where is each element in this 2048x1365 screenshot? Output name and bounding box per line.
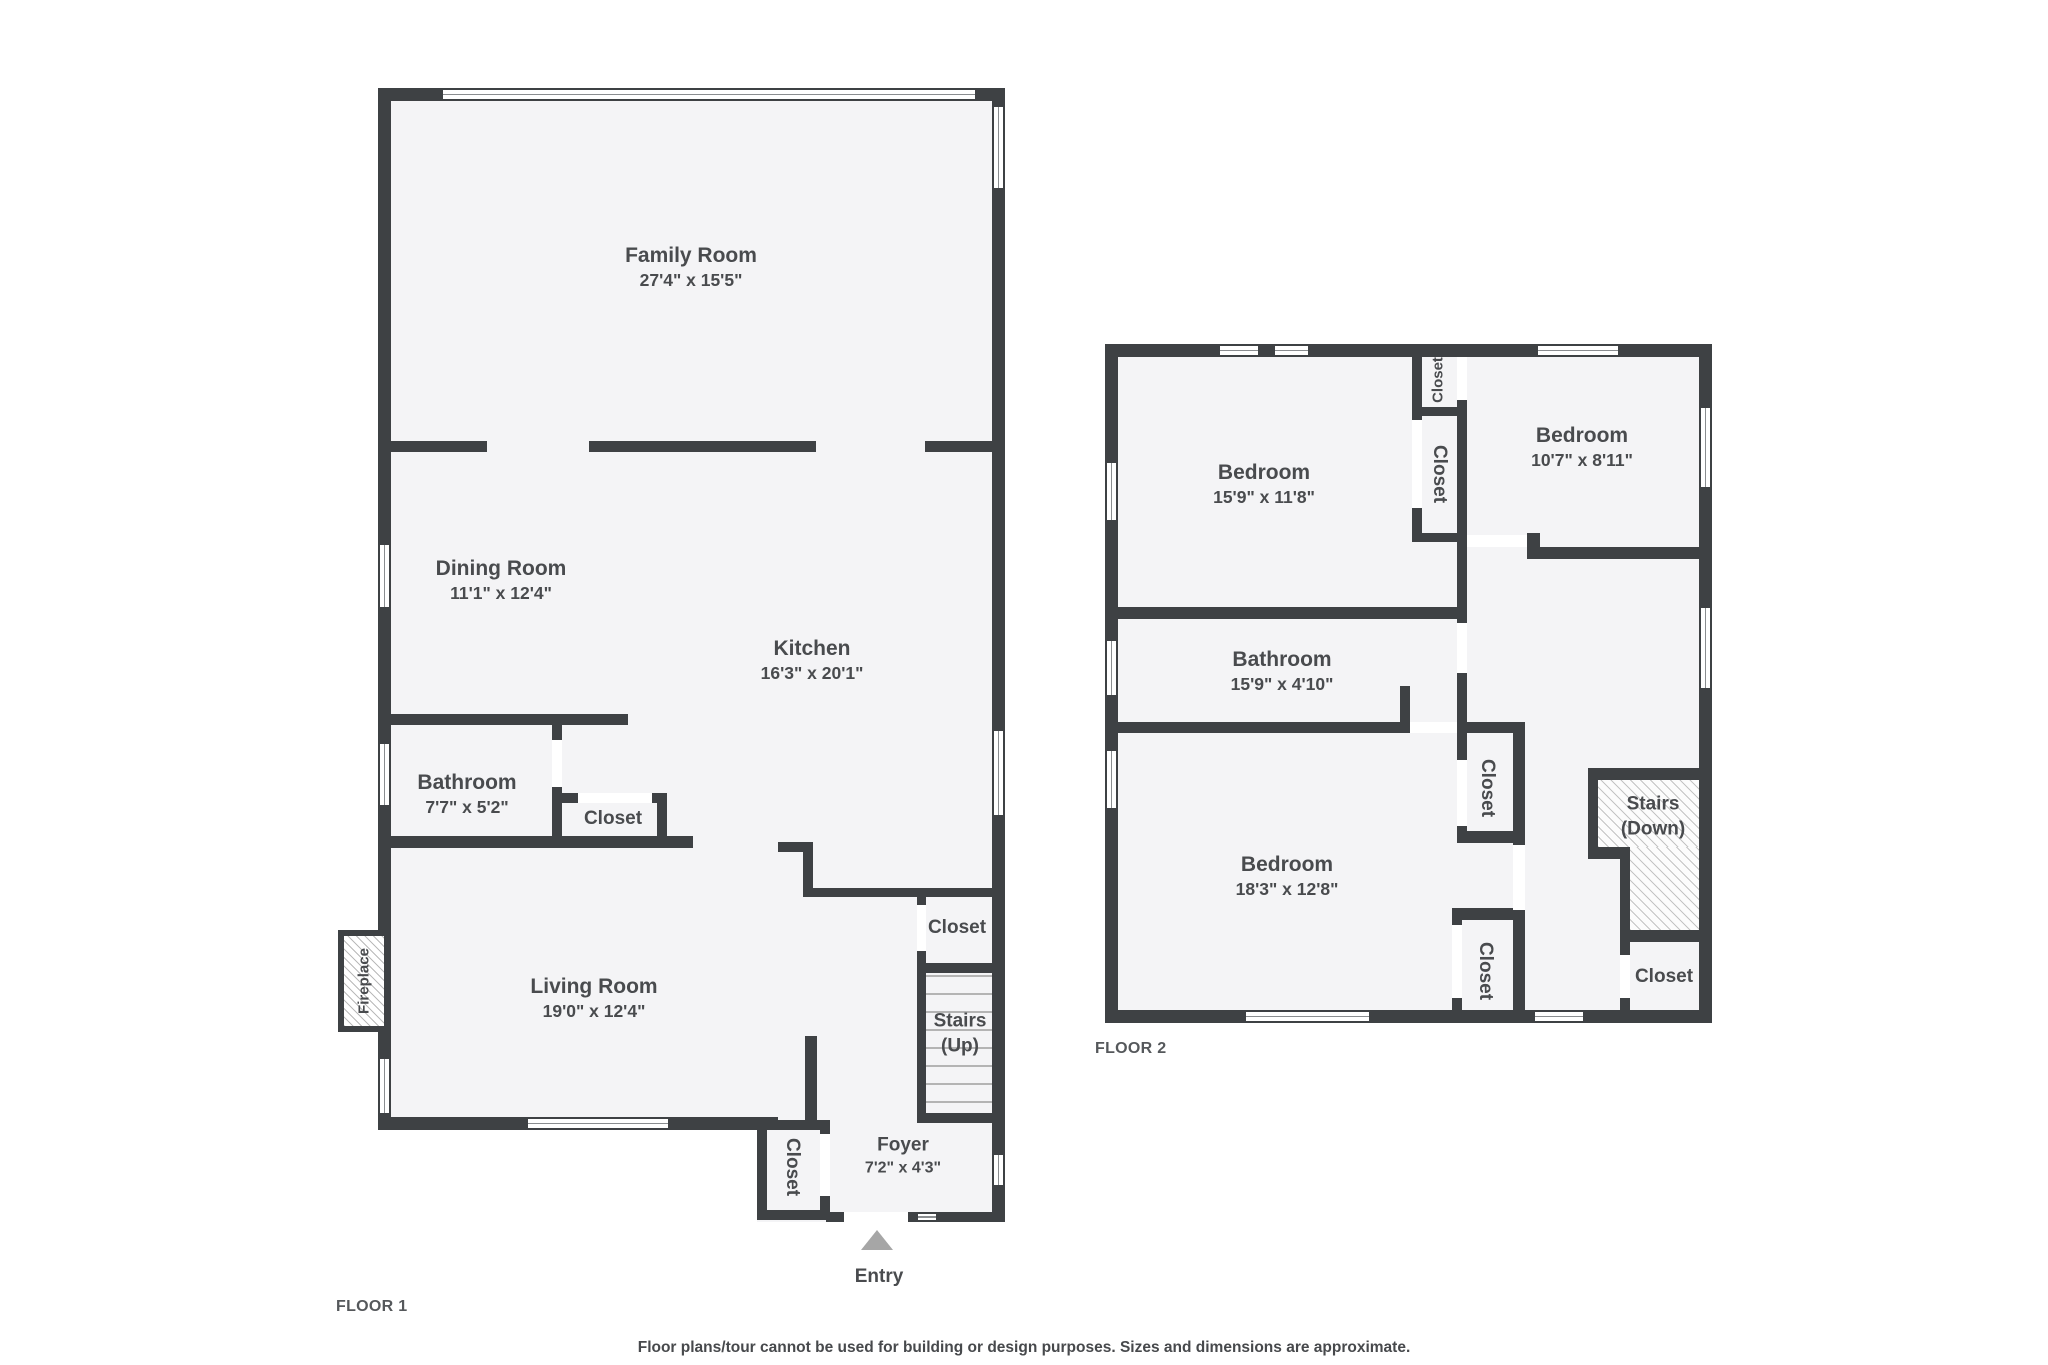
wall-segment: [1105, 1010, 1712, 1023]
wall-segment: [1513, 910, 1525, 1010]
window: [1246, 1010, 1369, 1023]
wall-segment: [917, 951, 926, 1117]
window: [992, 1155, 1005, 1185]
wall-segment: [936, 1212, 992, 1222]
window: [528, 1117, 668, 1130]
room-name: Family Room: [625, 242, 757, 269]
room-name: Kitchen: [761, 635, 864, 662]
stairs-line2: (Down): [1621, 817, 1685, 842]
closet-c-label: Closet: [1476, 759, 1498, 817]
room-dims: 11'1" x 12'4": [436, 582, 567, 605]
kitchen-label: Kitchen 16'3" x 20'1": [761, 635, 864, 685]
wall-segment: [1457, 400, 1467, 623]
wall-segment: [1452, 998, 1462, 1010]
family-room-label: Family Room 27'4" x 15'5": [625, 242, 757, 292]
wall-segment: [1588, 768, 1598, 859]
bedroom3-label: Bedroom 18'3" x 12'8": [1236, 851, 1339, 901]
closet-b-label: Closet: [1428, 445, 1450, 503]
entry-door-opening: [844, 1212, 908, 1222]
entry-arrow-icon: [861, 1230, 893, 1250]
door-opening: [1457, 357, 1467, 400]
window: [1275, 344, 1308, 357]
wall-segment: [820, 1120, 830, 1134]
wall-segment: [917, 897, 926, 905]
room-dims: 15'9" x 11'8": [1213, 486, 1315, 509]
living-room-label: Living Room 19'0" x 12'4": [530, 973, 657, 1023]
disclaimer-text: Floor plans/tour cannot be used for buil…: [638, 1339, 1411, 1357]
door-opening: [1457, 760, 1467, 826]
door-opening: [578, 793, 652, 803]
stairs-line2: (Up): [934, 1034, 987, 1059]
wall-segment: [1588, 768, 1712, 780]
wall-segment: [826, 1212, 844, 1222]
wall-segment: [378, 441, 487, 452]
wall-segment: [1620, 847, 1630, 942]
closet-a-label: Closet: [1430, 357, 1447, 403]
wall-segment: [1400, 686, 1410, 733]
room-name: Bedroom: [1236, 851, 1339, 878]
window: [992, 107, 1005, 188]
door-opening: [552, 740, 562, 787]
stairs-hatch: [1630, 847, 1699, 930]
room-dims: 16'3" x 20'1": [761, 662, 864, 685]
bathroom2-label: Bathroom 15'9" x 4'10": [1231, 646, 1334, 696]
closet-d-label: Closet: [1474, 942, 1496, 1000]
room-name: Bedroom: [1531, 422, 1633, 449]
wall-segment: [378, 714, 628, 725]
bedroom2-label: Bedroom 10'7" x 8'11": [1531, 422, 1633, 472]
floorplan-page: Family Room 27'4" x 15'5" Dining Room 11…: [0, 0, 2048, 1365]
stairs-line1: Stairs: [934, 1009, 987, 1034]
window: [378, 545, 391, 607]
door-opening: [820, 1134, 830, 1196]
room-dims: 15'9" x 4'10": [1231, 673, 1334, 696]
window: [992, 731, 1005, 815]
window: [1105, 463, 1118, 520]
window: [443, 88, 975, 101]
wall-segment: [657, 793, 667, 846]
closet-e-label: Closet: [1635, 966, 1693, 988]
room-name: Living Room: [530, 973, 657, 1000]
door-opening: [1620, 955, 1630, 998]
fireplace-label: Fireplace: [356, 948, 373, 1014]
wall-segment: [925, 441, 1005, 452]
wall-segment: [917, 963, 1005, 973]
wall-segment: [803, 888, 1005, 897]
room-dims: 18'3" x 12'8": [1236, 878, 1339, 901]
room-dims: 7'2" x 4'3": [865, 1158, 941, 1179]
door-opening: [1452, 925, 1462, 998]
door-opening: [917, 905, 926, 951]
foyer-label: Foyer 7'2" x 4'3": [865, 1133, 941, 1178]
stairs-down-label: Stairs (Down): [1621, 792, 1685, 841]
door-opening: [1412, 420, 1422, 508]
wall-segment: [757, 1120, 767, 1220]
door-opening: [1513, 845, 1525, 910]
wall-segment: [552, 714, 562, 740]
bathroom1-label: Bathroom 7'7" x 5'2": [417, 769, 516, 819]
window: [1105, 641, 1118, 695]
door-opening: [1457, 623, 1467, 673]
window: [1699, 608, 1712, 688]
kitchen-closet-label: Closet: [584, 808, 642, 830]
room-name: Bedroom: [1213, 459, 1315, 486]
wall-segment: [589, 441, 816, 452]
window: [1105, 751, 1118, 808]
floor1-tag: FLOOR 1: [336, 1298, 407, 1316]
wall-segment: [1620, 930, 1712, 942]
wall-segment: [1513, 722, 1525, 845]
room-name: Bathroom: [1231, 646, 1334, 673]
door-opening: [1467, 535, 1527, 547]
wall-segment: [1620, 942, 1630, 955]
window: [1220, 344, 1258, 357]
room-name: Dining Room: [436, 555, 567, 582]
floor2-tag: FLOOR 2: [1095, 1040, 1166, 1058]
wall-segment: [805, 1036, 817, 1130]
window: [1699, 408, 1712, 487]
wall-segment: [1452, 908, 1462, 925]
wall-segment: [1457, 733, 1467, 760]
room-dims: 10'7" x 8'11": [1531, 449, 1633, 472]
door-opening: [1410, 722, 1457, 733]
wall-segment: [1105, 722, 1410, 733]
stairs-up-label: Stairs (Up): [934, 1009, 987, 1058]
room-dims: 19'0" x 12'4": [530, 1000, 657, 1023]
wall-segment: [378, 836, 693, 848]
room-name: Bathroom: [417, 769, 516, 796]
window: [918, 1212, 936, 1222]
window: [378, 1059, 391, 1113]
foyer-closet-label: Closet: [781, 1138, 803, 1196]
room-dims: 27'4" x 15'5": [625, 269, 757, 292]
window: [378, 744, 391, 805]
stair-closet-label: Closet: [928, 917, 986, 939]
wall-segment: [1105, 344, 1712, 357]
wall-segment: [917, 1113, 1005, 1123]
window: [1535, 1010, 1583, 1023]
stairs-line1: Stairs: [1621, 792, 1685, 817]
wall-segment: [1620, 998, 1630, 1010]
wall-segment: [1527, 547, 1712, 559]
room-name: Foyer: [865, 1133, 941, 1158]
dining-room-label: Dining Room 11'1" x 12'4": [436, 555, 567, 605]
bedroom1-label: Bedroom 15'9" x 11'8": [1213, 459, 1315, 509]
wall-segment: [992, 88, 1005, 1222]
entry-label: Entry: [855, 1266, 904, 1288]
room-dims: 7'7" x 5'2": [417, 796, 516, 819]
wall-segment: [1105, 607, 1467, 619]
window: [1538, 344, 1618, 357]
wall-segment: [552, 793, 578, 803]
